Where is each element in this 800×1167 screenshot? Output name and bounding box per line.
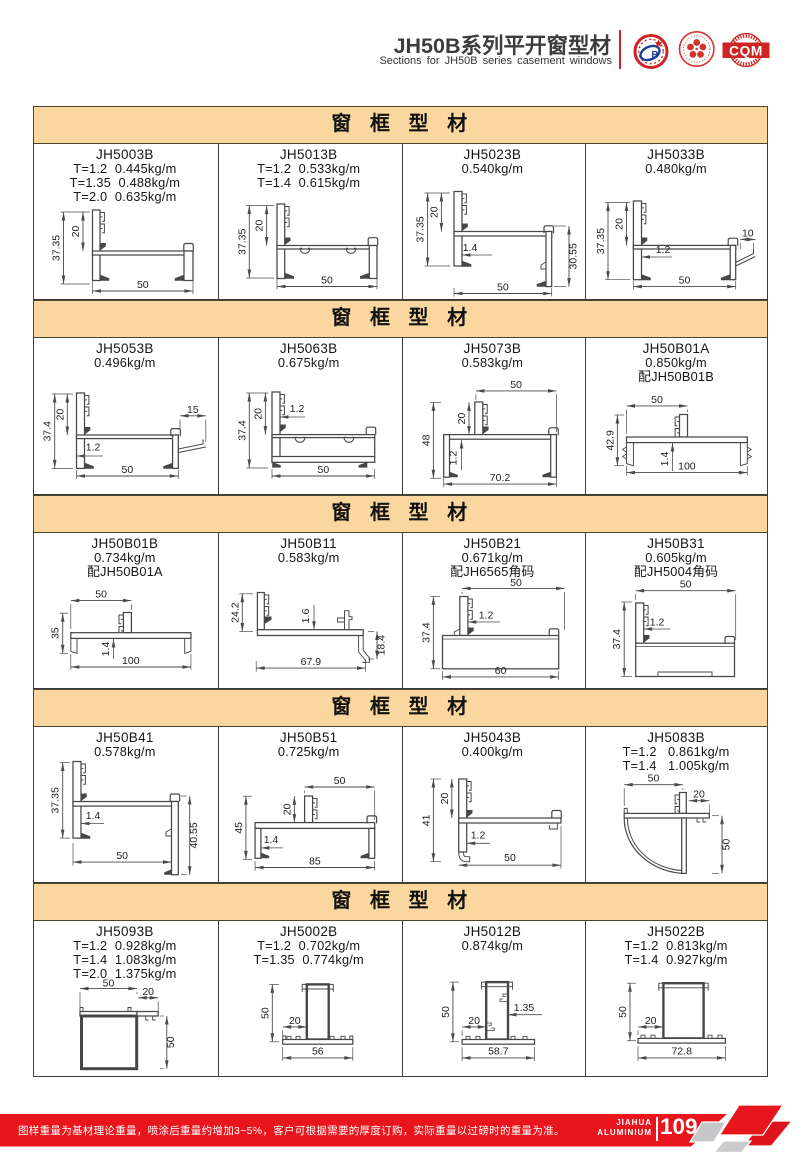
svg-text:48: 48 <box>420 434 432 446</box>
svg-text:50: 50 <box>510 379 522 391</box>
svg-text:40.55: 40.55 <box>188 822 200 848</box>
svg-text:42.9: 42.9 <box>604 430 616 451</box>
svg-text:37.4: 37.4 <box>42 421 54 442</box>
svg-text:50: 50 <box>510 577 522 589</box>
svg-text:35: 35 <box>50 627 62 639</box>
svg-text:50: 50 <box>334 775 346 787</box>
svg-text:41: 41 <box>420 814 432 826</box>
svg-text:24.2: 24.2 <box>229 602 241 623</box>
svg-text:1.35: 1.35 <box>514 1002 535 1014</box>
svg-text:50: 50 <box>504 852 516 864</box>
svg-text:50: 50 <box>680 579 692 591</box>
svg-text:20: 20 <box>252 408 264 420</box>
svg-text:1.6: 1.6 <box>300 609 312 624</box>
svg-text:20: 20 <box>439 793 451 805</box>
svg-text:1.4: 1.4 <box>463 242 478 254</box>
svg-text:60: 60 <box>495 665 507 677</box>
svg-text:37.4: 37.4 <box>236 420 248 441</box>
svg-text:50: 50 <box>648 773 660 785</box>
svg-text:37.35: 37.35 <box>595 228 607 254</box>
svg-text:58.7: 58.7 <box>488 1046 509 1058</box>
svg-text:50: 50 <box>116 850 128 862</box>
svg-text:20: 20 <box>456 413 468 425</box>
svg-text:20: 20 <box>468 1015 480 1027</box>
svg-text:50: 50 <box>137 279 149 291</box>
svg-text:1.4: 1.4 <box>264 834 279 846</box>
svg-text:37.35: 37.35 <box>50 787 62 813</box>
svg-text:1.2: 1.2 <box>448 451 460 466</box>
svg-text:50: 50 <box>103 978 115 990</box>
svg-text:50: 50 <box>95 589 107 601</box>
svg-text:72.8: 72.8 <box>671 1046 692 1058</box>
svg-text:1.4: 1.4 <box>659 452 671 467</box>
svg-text:1.2: 1.2 <box>650 617 665 629</box>
svg-text:1.2: 1.2 <box>290 403 305 415</box>
svg-text:20: 20 <box>614 218 626 230</box>
svg-text:50: 50 <box>122 464 134 476</box>
svg-text:100: 100 <box>678 461 696 473</box>
svg-text:20: 20 <box>254 220 266 232</box>
svg-text:50: 50 <box>321 275 333 287</box>
svg-text:50: 50 <box>259 1007 271 1019</box>
svg-text:10: 10 <box>742 227 754 239</box>
svg-text:67.9: 67.9 <box>301 656 322 668</box>
svg-text:20: 20 <box>645 1015 657 1027</box>
svg-text:50: 50 <box>617 1006 629 1018</box>
svg-text:1.4: 1.4 <box>86 810 101 822</box>
svg-text:18.4: 18.4 <box>376 635 388 656</box>
svg-text:45: 45 <box>233 822 245 834</box>
svg-text:50: 50 <box>165 1036 177 1048</box>
svg-text:20: 20 <box>70 226 82 238</box>
svg-text:1.2: 1.2 <box>471 830 486 842</box>
svg-text:37.35: 37.35 <box>51 235 63 261</box>
svg-text:15: 15 <box>187 404 199 416</box>
svg-text:20: 20 <box>289 1015 301 1027</box>
svg-text:37.4: 37.4 <box>611 629 623 650</box>
svg-text:50: 50 <box>440 1006 452 1018</box>
svg-text:50: 50 <box>651 394 663 406</box>
svg-text:56: 56 <box>312 1046 324 1058</box>
svg-text:20: 20 <box>281 803 293 815</box>
svg-text:50: 50 <box>318 464 330 476</box>
svg-text:50: 50 <box>679 275 691 287</box>
svg-text:85: 85 <box>309 855 321 867</box>
svg-text:37.35: 37.35 <box>415 216 427 242</box>
svg-text:1.2: 1.2 <box>656 244 671 256</box>
svg-text:20: 20 <box>428 206 440 218</box>
svg-text:1.2: 1.2 <box>86 442 101 454</box>
svg-text:50: 50 <box>497 282 509 294</box>
svg-text:1.2: 1.2 <box>479 610 494 622</box>
svg-text:37.35: 37.35 <box>236 229 248 255</box>
svg-text:20: 20 <box>142 986 154 998</box>
svg-text:70.2: 70.2 <box>490 472 511 484</box>
svg-text:50: 50 <box>721 839 733 851</box>
svg-text:30.55: 30.55 <box>568 243 580 269</box>
svg-text:37.4: 37.4 <box>420 622 432 643</box>
svg-text:1.4: 1.4 <box>100 642 112 657</box>
svg-text:100: 100 <box>122 655 140 667</box>
svg-text:20: 20 <box>693 789 705 801</box>
svg-text:20: 20 <box>54 409 66 421</box>
